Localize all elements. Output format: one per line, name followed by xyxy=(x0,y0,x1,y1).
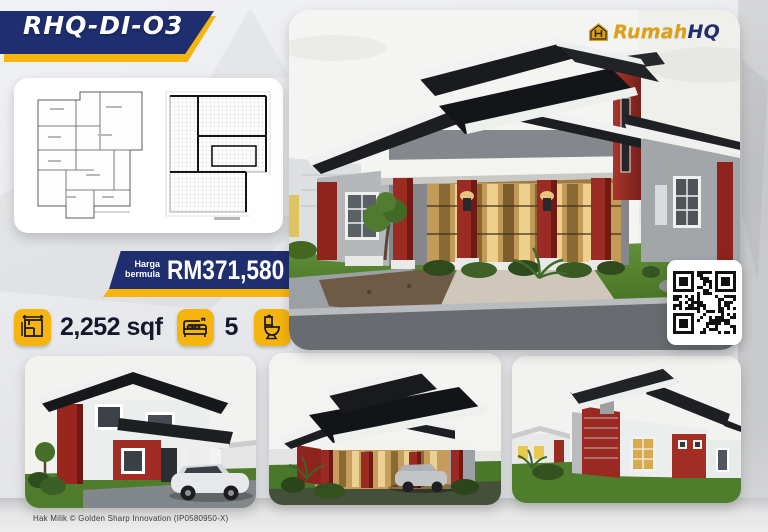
model-code: RHQ-DI-O3 xyxy=(0,11,214,40)
specs-row: 2,252 sqf 5 4 xyxy=(14,306,316,348)
qr-code xyxy=(667,260,742,345)
price-label: Harga bermula xyxy=(125,260,160,280)
area-icon xyxy=(14,309,51,346)
thumbnail-2-render xyxy=(269,353,501,505)
logo-text-navy: HQ xyxy=(688,21,720,43)
bedrooms-value: 5 xyxy=(225,313,238,342)
background-watermark xyxy=(210,8,290,78)
logo-text-gold: Rumah xyxy=(613,21,687,43)
qr-code-pattern xyxy=(673,271,736,334)
rumahhq-logo-icon xyxy=(588,22,609,42)
floor-plan-right xyxy=(166,92,270,220)
thumbnail-house-side xyxy=(512,356,741,503)
toilet-icon xyxy=(254,309,291,346)
bed-icon xyxy=(177,309,214,346)
copyright-text: Hak Milik © Golden Sharp Innovation (IP0… xyxy=(33,514,228,523)
price-amount: RM371,580 xyxy=(167,255,284,286)
logo-text: RumahHQ xyxy=(613,21,720,43)
floor-plan-drawing xyxy=(14,78,283,233)
area-value: 2,252 sqf xyxy=(60,313,163,342)
rumahhq-logo: RumahHQ xyxy=(588,21,720,43)
flyer-page: RHQ-DI-O3 xyxy=(0,0,768,532)
price-banner: Harga bermula RM371,580 xyxy=(109,251,290,289)
price-banner-accent xyxy=(103,289,290,297)
thumbnail-house-front xyxy=(269,353,501,505)
floor-plan-left xyxy=(38,92,142,218)
thumbnail-1-render xyxy=(25,356,256,508)
floor-plan-card xyxy=(14,78,283,233)
model-code-banner: RHQ-DI-O3 xyxy=(0,11,214,54)
thumbnail-3-render xyxy=(512,356,741,503)
thumbnail-house-two-storey xyxy=(25,356,256,508)
